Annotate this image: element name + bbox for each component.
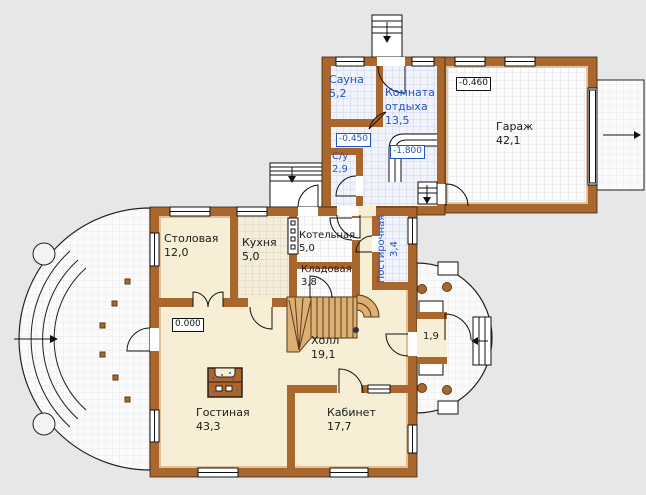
window	[198, 468, 238, 477]
room-area: 5,2	[329, 87, 347, 100]
level-mark-ground: 0.000	[172, 318, 204, 332]
room-area: 5,0	[299, 243, 315, 254]
garage-door-opening	[588, 88, 597, 185]
room-name: Кабинет	[327, 406, 376, 419]
room-area: 13,5	[385, 114, 410, 127]
window	[412, 57, 434, 66]
newel-post	[353, 327, 359, 333]
terrace-column	[33, 243, 55, 265]
room-name: Постирочная	[376, 215, 387, 284]
sauna-entry-steps	[372, 15, 402, 57]
room-area: 2,9	[332, 164, 348, 175]
window	[368, 385, 390, 393]
room-label-sauna: Сауна 5,2	[329, 73, 364, 101]
room-label-kitchen: Кухня 5,0	[242, 236, 277, 264]
room-name: Сауна	[329, 73, 364, 86]
room-area: 19,1	[311, 348, 336, 361]
porch-dimension: 1,9	[423, 331, 439, 344]
window	[505, 57, 535, 66]
room-area: 17,7	[327, 420, 352, 433]
window	[237, 207, 267, 216]
room-name: Котельная	[299, 230, 355, 241]
level-mark-garage: -0.460	[456, 77, 491, 91]
room-label-bathroom: С/у 2,9	[332, 151, 348, 176]
room-name: С/у	[332, 151, 348, 162]
garage-apron	[597, 80, 644, 190]
room-name: Кухня	[242, 236, 277, 249]
room-name: Гараж	[496, 120, 533, 133]
wall	[287, 385, 337, 393]
terrace-column	[33, 413, 55, 435]
room-area: 3,4	[389, 241, 400, 257]
room-label-boiler: Котельная 5,0	[299, 230, 355, 255]
room-label-rest-room: Комната отдыха 13,5	[385, 86, 441, 127]
wall	[390, 385, 408, 393]
room-name: Комната отдыха	[385, 86, 435, 113]
window	[330, 468, 368, 477]
window	[336, 57, 364, 66]
garage-steps	[418, 182, 437, 204]
wall	[331, 119, 376, 127]
room-area: 42,1	[496, 134, 521, 147]
window	[170, 207, 210, 216]
room-name: Гостиная	[196, 406, 250, 419]
porch-pillar	[438, 401, 458, 414]
room-label-study: Кабинет 17,7	[327, 406, 376, 434]
window	[408, 218, 417, 244]
room-label-dining: Столовая 12,0	[164, 232, 218, 260]
window	[455, 57, 485, 66]
fireplace	[208, 368, 242, 397]
room-label-garage: Гараж 42,1	[496, 120, 533, 148]
room-area: 43,3	[196, 420, 221, 433]
wall	[223, 298, 248, 307]
room-label-pantry: Кладовая 3,8	[301, 264, 352, 289]
room-area: 3,8	[301, 277, 317, 288]
room-name: Столовая	[164, 232, 218, 245]
porch-steps	[471, 317, 491, 365]
room-label-living: Гостиная 43,3	[196, 406, 250, 434]
room-area: 12,0	[164, 246, 189, 259]
level-mark-sauna-lobby: -0.450	[336, 133, 371, 147]
window	[150, 233, 159, 266]
room-label-hall: Холл 19,1	[311, 334, 339, 362]
room-label-laundry: Постирочная 3,4	[376, 214, 408, 284]
window	[150, 410, 159, 442]
terrace	[14, 208, 150, 470]
wall	[159, 298, 193, 307]
room-name: Холл	[311, 334, 339, 347]
porch-pillar	[438, 262, 458, 275]
chimney-shaft	[288, 218, 298, 254]
window	[408, 425, 417, 453]
floor-plan: Сауна 5,2 Комната отдыха 13,5 С/у 2,9 По…	[0, 0, 646, 495]
boiler-entry-steps	[270, 163, 322, 207]
level-mark-basement: -1.800	[390, 145, 425, 159]
wall	[230, 216, 238, 298]
room-area: 5,0	[242, 250, 260, 263]
room-name: Кладовая	[301, 264, 352, 275]
wall	[287, 393, 295, 468]
